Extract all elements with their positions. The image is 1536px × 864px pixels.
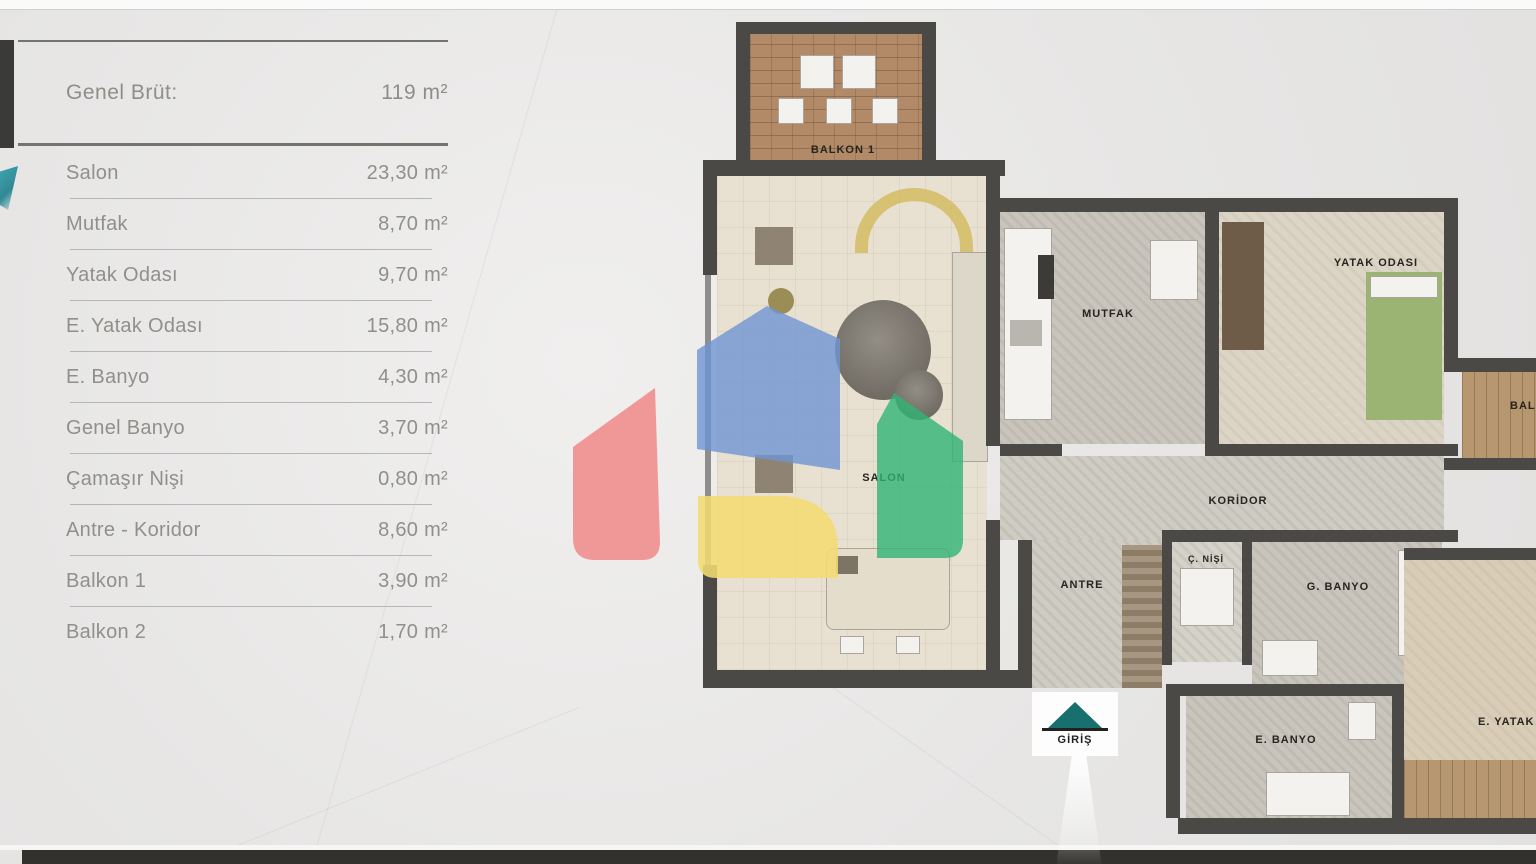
room-label: Çamaşır Nişi bbox=[66, 468, 184, 491]
room-label: E. Yatak Odası bbox=[66, 315, 203, 338]
logo-blue-shape bbox=[697, 306, 840, 470]
gross-area-value: 119 m² bbox=[381, 81, 448, 105]
room-label: Yatak Odası bbox=[66, 264, 178, 287]
bottom-bar bbox=[22, 850, 1536, 864]
plan-label-ebeveyn-yatak-odasi: E. YATAK ODASI bbox=[1478, 716, 1536, 728]
wall bbox=[1000, 198, 1458, 212]
wall bbox=[1162, 530, 1458, 542]
room-area-value: 0,80 m² bbox=[378, 468, 448, 491]
balcony-chair bbox=[872, 98, 898, 124]
top-strip bbox=[0, 0, 1536, 10]
wall bbox=[703, 160, 717, 275]
entrance-arrow-icon bbox=[1048, 702, 1102, 728]
room-label: E. Banyo bbox=[66, 366, 150, 389]
wall bbox=[736, 22, 936, 34]
dining-chair bbox=[896, 636, 920, 654]
wall bbox=[1178, 818, 1536, 834]
wall bbox=[1000, 444, 1062, 456]
stairs bbox=[1122, 545, 1162, 688]
area-row: Mutfak 8,70 m² bbox=[18, 199, 448, 249]
salon-armchair bbox=[755, 227, 793, 265]
room-ebeveyn-yatak-odasi-floor bbox=[1404, 760, 1536, 818]
washing-machine bbox=[1180, 568, 1234, 626]
balcony-table bbox=[800, 55, 834, 89]
background-facet-line bbox=[22, 707, 579, 864]
room-balkon-2 bbox=[1462, 372, 1536, 458]
wall bbox=[1205, 212, 1219, 444]
balcony-chair bbox=[826, 98, 852, 124]
entrance-label: GİRİŞ bbox=[1058, 734, 1093, 746]
area-row: Yatak Odası 9,70 m² bbox=[18, 250, 448, 300]
area-row: Çamaşır Nişi 0,80 m² bbox=[18, 454, 448, 504]
area-table: Salon 23,30 m² Mutfak 8,70 m² Yatak Odas… bbox=[18, 148, 448, 657]
sink bbox=[1262, 640, 1318, 676]
wall bbox=[1444, 458, 1536, 470]
wall bbox=[1242, 540, 1252, 665]
area-row: Balkon 1 3,90 m² bbox=[18, 556, 448, 606]
area-row: Balkon 2 1,70 m² bbox=[18, 607, 448, 657]
logo-yellow-shape bbox=[698, 496, 838, 578]
room-area-value: 23,30 m² bbox=[367, 162, 448, 185]
room-label: Salon bbox=[66, 162, 119, 185]
room-ebeveyn-yatak-odasi bbox=[1404, 560, 1536, 760]
logo-green-shape bbox=[877, 393, 963, 558]
wall bbox=[986, 520, 1000, 688]
plan-label-balkon-1: BALKON 1 bbox=[811, 144, 875, 156]
area-row: Genel Banyo 3,70 m² bbox=[18, 403, 448, 453]
wall bbox=[1404, 548, 1536, 560]
plan-label-camasir-nisi: Ç. NİŞİ bbox=[1188, 554, 1224, 564]
room-area-value: 3,90 m² bbox=[378, 570, 448, 593]
room-area-value: 15,80 m² bbox=[367, 315, 448, 338]
brand-logo-watermark bbox=[560, 280, 980, 580]
balcony-table bbox=[842, 55, 876, 89]
wall bbox=[1392, 684, 1404, 818]
logo-red-shape bbox=[573, 388, 660, 560]
plan-label-mutfak: MUTFAK bbox=[1082, 308, 1134, 320]
room-label: Antre - Koridor bbox=[66, 519, 201, 542]
dining-chair bbox=[840, 636, 864, 654]
wall bbox=[1205, 444, 1458, 456]
wall bbox=[1166, 684, 1180, 818]
plan-label-antre: ANTRE bbox=[1061, 579, 1104, 591]
wall bbox=[1018, 540, 1032, 688]
room-label: Balkon 2 bbox=[66, 621, 146, 644]
area-row: Salon 23,30 m² bbox=[18, 148, 448, 198]
balcony-chair bbox=[778, 98, 804, 124]
wall bbox=[1444, 198, 1458, 372]
plan-label-koridor: KORİDOR bbox=[1209, 495, 1268, 507]
plan-label-yatak-odasi: YATAK ODASI bbox=[1334, 257, 1418, 269]
area-row: E. Yatak Odası 15,80 m² bbox=[18, 301, 448, 351]
room-area-value: 4,30 m² bbox=[378, 366, 448, 389]
wall bbox=[703, 160, 1005, 176]
room-area-value: 1,70 m² bbox=[378, 621, 448, 644]
wardrobe bbox=[1222, 222, 1264, 350]
entrance-arrow-base bbox=[1042, 728, 1108, 731]
area-row: E. Banyo 4,30 m² bbox=[18, 352, 448, 402]
area-row: Antre - Koridor 8,60 m² bbox=[18, 505, 448, 555]
room-area-value: 8,60 m² bbox=[378, 519, 448, 542]
kitchen-appliance bbox=[1038, 255, 1054, 299]
room-area-value: 8,70 m² bbox=[378, 213, 448, 236]
wall bbox=[1444, 358, 1536, 372]
plan-label-balkon-2: BALKON 2 bbox=[1510, 400, 1536, 412]
wall bbox=[1162, 540, 1172, 665]
entrance-light-beam bbox=[1056, 756, 1102, 864]
bed-pillow bbox=[1370, 276, 1438, 298]
wall bbox=[922, 22, 936, 162]
room-label: Genel Banyo bbox=[66, 417, 185, 440]
kitchen-sink bbox=[1010, 320, 1042, 346]
room-label: Mutfak bbox=[66, 213, 128, 236]
logo-fragment-icon bbox=[0, 166, 18, 210]
kitchen-window bbox=[1150, 240, 1198, 300]
plan-label-ebeveyn-banyo: E. BANYO bbox=[1255, 734, 1316, 746]
vanity bbox=[1266, 772, 1350, 816]
wall bbox=[986, 176, 1000, 446]
accent-block bbox=[0, 40, 14, 148]
toilet bbox=[1348, 702, 1376, 740]
room-area-value: 3,70 m² bbox=[378, 417, 448, 440]
gross-area-box: Genel Brüt: 119 m² bbox=[18, 40, 448, 146]
room-area-value: 9,70 m² bbox=[378, 264, 448, 287]
floor-plan-page: Genel Brüt: 119 m² Salon 23,30 m² Mutfak… bbox=[0, 0, 1536, 864]
gross-area-label: Genel Brüt: bbox=[66, 81, 178, 105]
wall bbox=[736, 22, 750, 162]
room-label: Balkon 1 bbox=[66, 570, 146, 593]
plan-label-genel-banyo: G. BANYO bbox=[1307, 581, 1369, 593]
